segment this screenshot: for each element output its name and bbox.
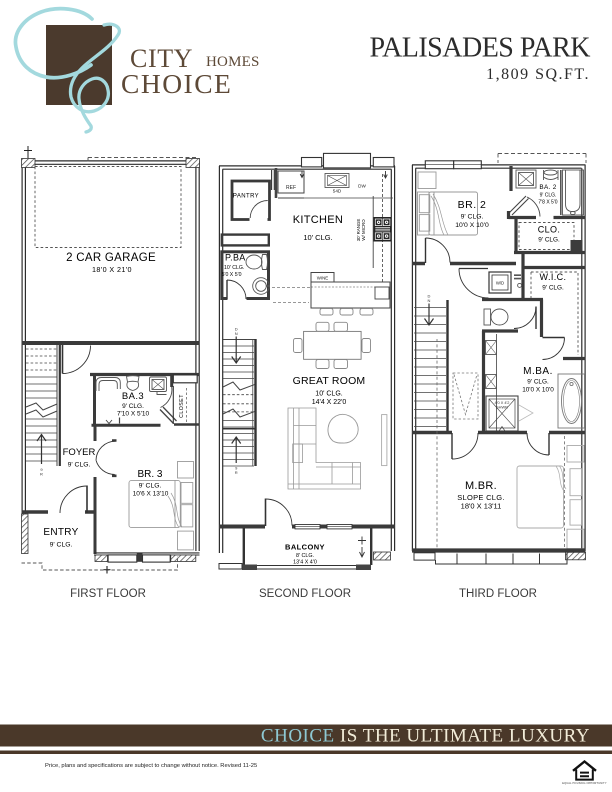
svg-text:REF: REF <box>286 185 296 191</box>
svg-text:N: N <box>235 331 238 336</box>
svg-text:CHOICE IS THE ULTIMATE LUXURY: CHOICE IS THE ULTIMATE LUXURY <box>261 726 590 747</box>
svg-text:BA. 2: BA. 2 <box>539 184 556 191</box>
svg-text:BA.3: BA.3 <box>122 391 144 402</box>
svg-text:18'0 X 21'0: 18'0 X 21'0 <box>92 265 132 274</box>
svg-text:18'0 X 13'11: 18'0 X 13'11 <box>461 502 502 511</box>
svg-text:EQUAL HOUSING OPPORTUNITY: EQUAL HOUSING OPPORTUNITY <box>562 782 607 785</box>
svg-text:FOYER: FOYER <box>63 447 96 458</box>
svg-text:N: N <box>428 298 431 303</box>
svg-text:M.BA.: M.BA. <box>523 366 553 377</box>
svg-text:W.I.C.: W.I.C. <box>540 272 567 282</box>
svg-text:10'0 X 10'0: 10'0 X 10'0 <box>455 222 489 229</box>
svg-text:10' CLG.: 10' CLG. <box>315 391 342 398</box>
svg-text:2 CAR GARAGE: 2 CAR GARAGE <box>66 252 156 264</box>
svg-text:R: R <box>40 472 43 477</box>
svg-text:9' CLG.: 9' CLG. <box>68 462 91 469</box>
svg-text:9' CLG.: 9' CLG. <box>139 483 162 490</box>
svg-text:8' CLG.: 8' CLG. <box>296 553 314 559</box>
svg-text:BR. 3: BR. 3 <box>137 469 162 480</box>
svg-text:9' CLG.: 9' CLG. <box>50 542 73 549</box>
svg-text:7'10 X 5'10: 7'10 X 5'10 <box>117 411 150 418</box>
svg-text:9' CLG.: 9' CLG. <box>540 193 557 199</box>
svg-text:ENTRY: ENTRY <box>43 527 78 538</box>
svg-text:1,809 SQ.FT.: 1,809 SQ.FT. <box>486 66 590 83</box>
svg-text:BR. 2: BR. 2 <box>458 199 487 211</box>
svg-text:SHWR: SHWR <box>496 405 508 410</box>
svg-text:W/ MICRO: W/ MICRO <box>361 219 366 241</box>
svg-text:DW: DW <box>358 184 366 189</box>
svg-text:13'4 X 4'0: 13'4 X 4'0 <box>293 560 317 566</box>
svg-text:CLOSET: CLOSET <box>179 394 185 418</box>
svg-text:10' CLG.: 10' CLG. <box>224 265 244 271</box>
svg-text:M.BR.: M.BR. <box>465 480 497 492</box>
svg-text:R: R <box>235 470 238 475</box>
svg-text:9' CLG.: 9' CLG. <box>461 214 484 221</box>
svg-text:10' CLG.: 10' CLG. <box>303 233 332 242</box>
svg-text:PANTRY: PANTRY <box>233 194 259 200</box>
svg-text:THIRD FLOOR: THIRD FLOOR <box>459 588 537 600</box>
svg-text:SECOND FLOOR: SECOND FLOOR <box>259 588 351 600</box>
svg-text:9' CLG.: 9' CLG. <box>542 285 564 292</box>
svg-text:10'6 X 13'10: 10'6 X 13'10 <box>133 491 169 498</box>
svg-text:PALISADES PARK: PALISADES PARK <box>370 33 591 64</box>
svg-text:9' CLG.: 9' CLG. <box>122 403 144 410</box>
svg-text:CHOICE: CHOICE <box>121 68 232 99</box>
svg-text:W/D: W/D <box>496 281 504 286</box>
svg-text:14'4 X 22'0: 14'4 X 22'0 <box>312 399 347 406</box>
svg-text:5'0 X 5'0: 5'0 X 5'0 <box>222 272 242 278</box>
svg-text:9' CLG.: 9' CLG. <box>538 237 560 244</box>
svg-text:54D: 54D <box>333 189 342 194</box>
svg-text:GREAT ROOM: GREAT ROOM <box>293 375 366 387</box>
svg-text:KITCHEN: KITCHEN <box>293 214 343 226</box>
svg-text:7'8 X 5'0: 7'8 X 5'0 <box>538 200 557 206</box>
svg-text:P.BA: P.BA <box>225 253 246 263</box>
svg-text:9' CLG.: 9' CLG. <box>527 379 549 386</box>
svg-text:10'0 X 10'0: 10'0 X 10'0 <box>522 387 554 394</box>
svg-text:CLO.: CLO. <box>538 225 561 235</box>
svg-text:Price, plans and specification: Price, plans and specifications are subj… <box>45 763 257 769</box>
svg-text:BALCONY: BALCONY <box>285 543 325 552</box>
svg-text:WINE: WINE <box>317 276 329 281</box>
svg-text:FIRST FLOOR: FIRST FLOOR <box>70 588 146 600</box>
